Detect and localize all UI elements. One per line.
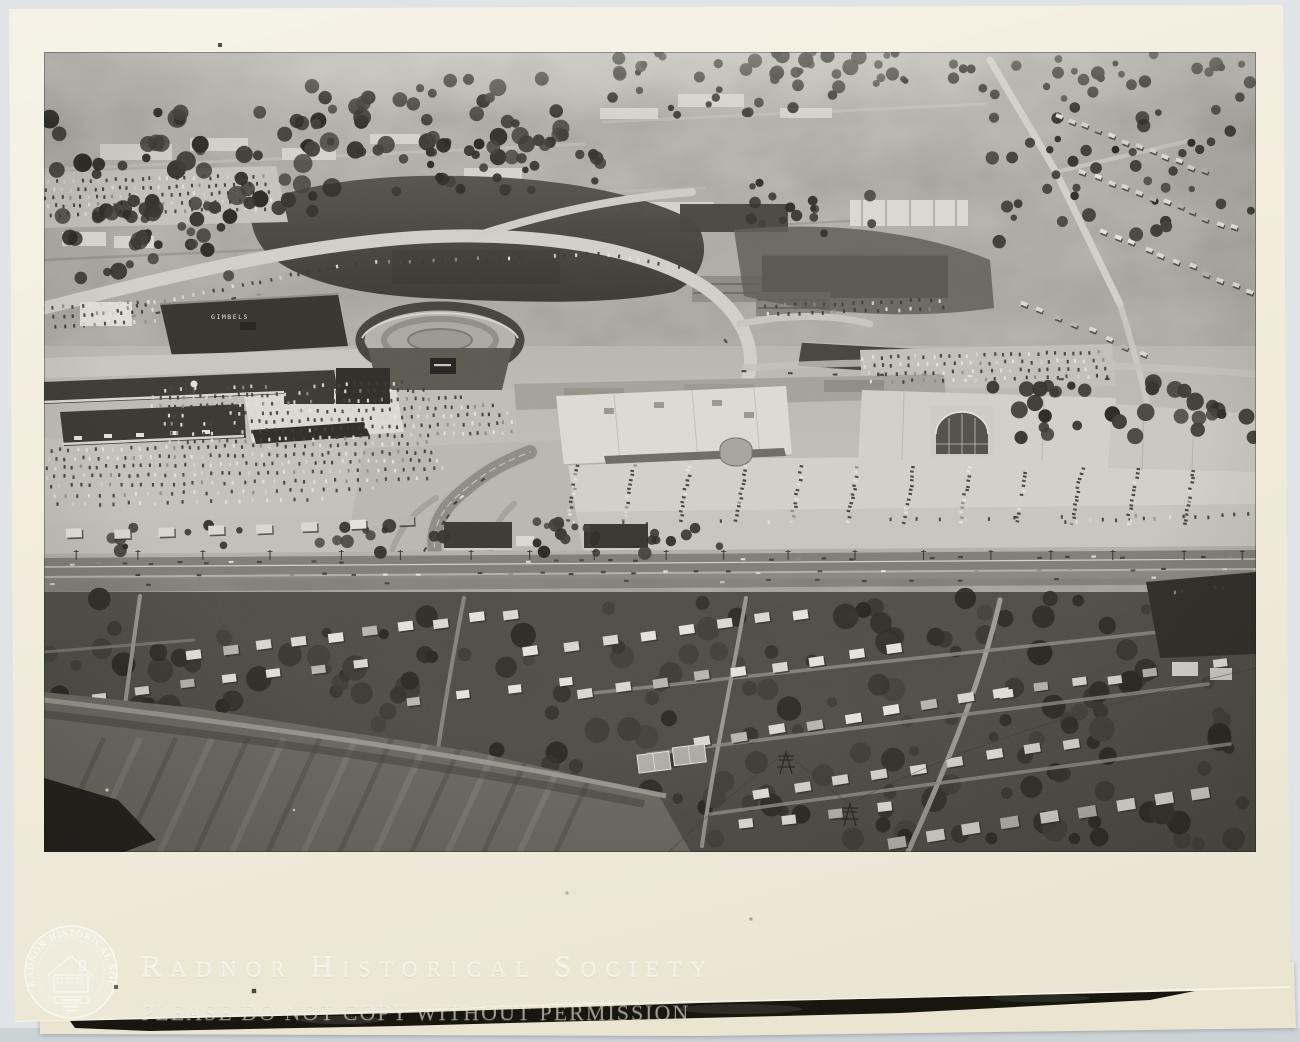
- dust-specks: [0, 0, 2, 2]
- watermark-copy-notice: PLEASE DO NOT COPY WITHOUT PERMISSION: [141, 1000, 690, 1026]
- watermark-society-name: Radnor Historical Society: [141, 949, 715, 985]
- historical-society-seal-stamp: RADNOR HISTORICAL SOCIETY: [21, 922, 121, 1022]
- seal-outer-ring: [25, 926, 117, 1018]
- wedge-foliage-highlight: [678, 1004, 802, 1014]
- photo-print-paper: GIMBELS: [7, 5, 1290, 1024]
- scanned-archive-photo: GIMBELS: [0, 0, 1300, 1042]
- paper-bottom-edge-highlight: [7, 5, 1290, 1024]
